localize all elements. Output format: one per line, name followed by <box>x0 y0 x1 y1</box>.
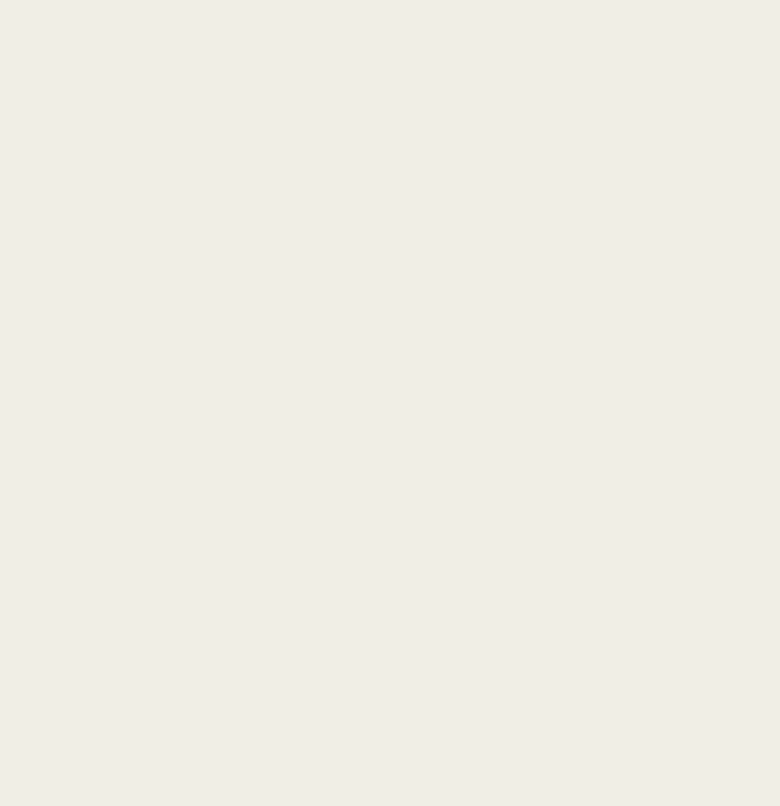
map-background <box>0 0 780 806</box>
master-plan-map <box>0 0 780 806</box>
master-plan-frame <box>0 0 780 806</box>
